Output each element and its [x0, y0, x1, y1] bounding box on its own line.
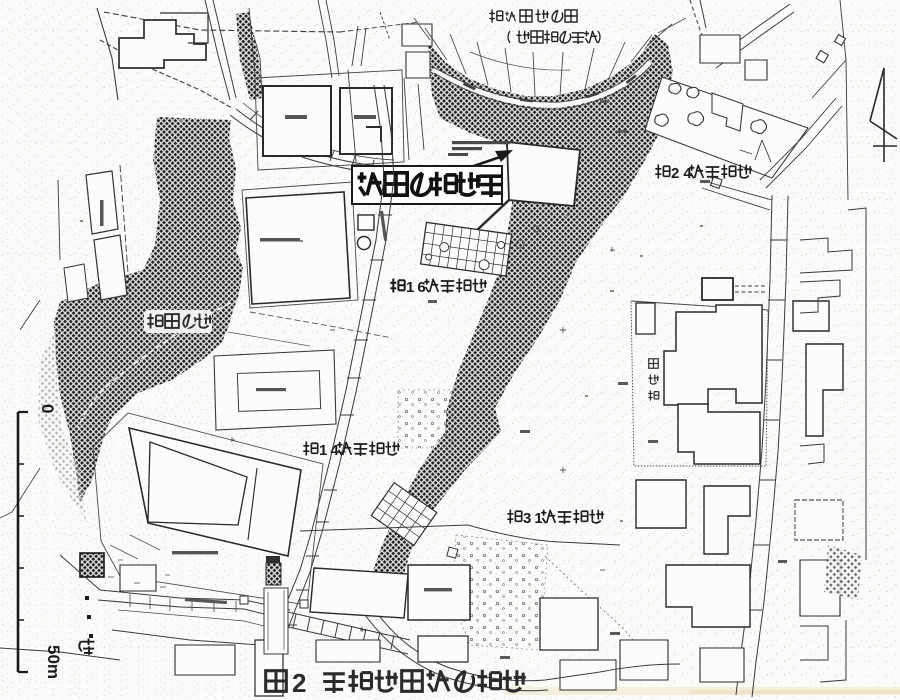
svg-text:2: 2 — [292, 668, 306, 698]
svg-text:50m: 50m — [44, 645, 63, 679]
svg-text:0: 0 — [38, 404, 57, 413]
